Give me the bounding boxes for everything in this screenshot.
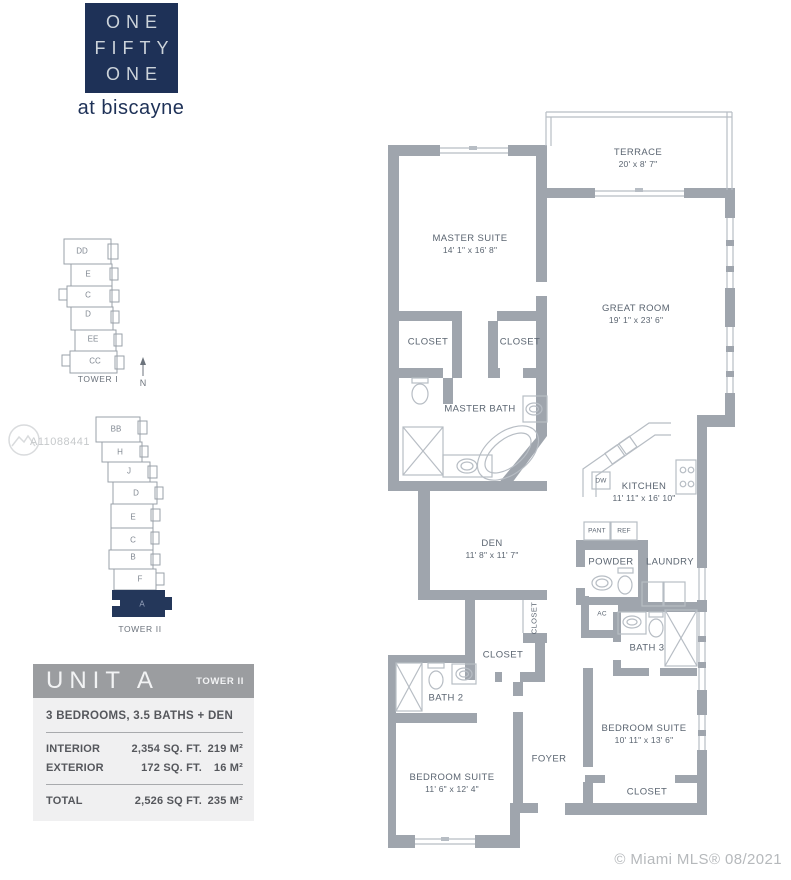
room-label-kitchen: KITCHEN 11' 11" x 16' 10" xyxy=(613,481,676,503)
room-label-closet-hall: CLOSET xyxy=(483,650,523,661)
powder-toilet-icon xyxy=(618,568,633,594)
room-label-closet-vertical: CLOSET xyxy=(530,602,539,634)
tower2-unit-e: E xyxy=(130,513,135,522)
tower2-unit-bb: BB xyxy=(111,425,122,434)
exterior-label: EXTERIOR xyxy=(46,762,124,774)
room-label-bedroom-suite-1: BEDROOM SUITE 11' 6" x 12' 4" xyxy=(410,772,495,794)
tower-1-diagram xyxy=(59,239,124,373)
tower2-unit-h: H xyxy=(117,448,123,457)
card-divider-2 xyxy=(46,784,243,785)
unit-tower-label: TOWER II xyxy=(196,676,244,687)
unit-info-card: UNIT A TOWER II 3 BEDROOMS, 3.5 BATHS + … xyxy=(33,664,254,821)
room-label-master-bath: MASTER BATH xyxy=(444,404,515,415)
interior-row: INTERIOR 2,354 SQ. FT. 219 M² xyxy=(46,743,243,755)
tower2-unit-f: F xyxy=(138,575,143,584)
room-label-foyer: FOYER xyxy=(532,754,567,765)
room-label-laundry: LAUNDRY xyxy=(646,557,694,568)
master-bath-toilet-icon xyxy=(412,378,428,404)
exterior-row: EXTERIOR 172 SQ. FT. 16 M² xyxy=(46,762,243,774)
pantry-label: PANT xyxy=(588,528,606,535)
bath2-toilet-icon xyxy=(428,663,444,689)
ac-label: AC xyxy=(597,611,606,618)
tower1-unit-e: E xyxy=(85,270,90,279)
tower-2-diagram xyxy=(96,417,164,590)
tower2-unit-j: J xyxy=(127,467,131,476)
tower1-unit-dd: DD xyxy=(76,247,88,256)
tower2-unit-c: C xyxy=(130,536,136,545)
tower2-unit-a-highlighted: A xyxy=(139,600,144,609)
room-label-bedroom-suite-2: BEDROOM SUITE 10' 11" x 13' 6" xyxy=(602,723,687,745)
exterior-sqft: 172 SQ. FT. xyxy=(124,762,202,774)
fridge-label: REF xyxy=(617,528,631,535)
room-label-closet-4: CLOSET xyxy=(627,787,667,798)
room-label-den: DEN 11' 8" x 11' 7" xyxy=(465,538,518,560)
card-divider-1 xyxy=(46,732,243,733)
tower2-unit-b: B xyxy=(130,553,135,562)
total-section: TOTAL 2,526 SQ FT. 235 M² xyxy=(46,795,243,807)
tower1-unit-cc: CC xyxy=(89,357,101,366)
tower2-unit-d: D xyxy=(133,489,139,498)
tower1-unit-ee: EE xyxy=(88,335,99,344)
north-label: N xyxy=(140,378,147,388)
bath3-shower-icon xyxy=(665,610,697,666)
tower1-unit-d: D xyxy=(85,310,91,319)
bath2-shower-icon xyxy=(396,663,422,711)
north-arrow-icon xyxy=(140,357,146,376)
room-label-great-room: GREAT ROOM 19' 1" x 23' 6" xyxy=(602,303,670,325)
mls-watermark: A11088441 xyxy=(30,436,90,448)
room-label-closet-1: CLOSET xyxy=(408,337,448,348)
room-label-bath-3: BATH 3 xyxy=(630,643,665,654)
total-m2: 235 M² xyxy=(202,795,243,807)
room-label-master-suite: MASTER SUITE 14' 1" x 16' 8" xyxy=(432,233,507,255)
cooktop-icon xyxy=(676,460,696,494)
exterior-m2: 16 M² xyxy=(202,762,243,774)
powder-sink-icon xyxy=(592,576,612,590)
total-sqft: 2,526 SQ FT. xyxy=(124,795,202,807)
total-label: TOTAL xyxy=(46,795,124,807)
interior-m2: 219 M² xyxy=(202,743,243,755)
master-bath-shower-icon xyxy=(403,427,443,475)
unit-card-body: 3 BEDROOMS, 3.5 BATHS + DEN INTERIOR 2,3… xyxy=(33,698,254,821)
bath3-toilet-icon xyxy=(649,612,663,637)
room-label-bath-2: BATH 2 xyxy=(429,693,464,704)
unit-card-header: UNIT A TOWER II xyxy=(33,664,254,698)
dishwasher-label: DW xyxy=(595,478,606,485)
room-label-closet-2: CLOSET xyxy=(500,337,540,348)
tower1-unit-c: C xyxy=(85,291,91,300)
interior-sqft: 2,354 SQ. FT. xyxy=(124,743,202,755)
room-label-terrace: TERRACE 20' x 8' 7" xyxy=(614,147,662,169)
unit-title: UNIT A xyxy=(46,667,159,695)
page: ONE FIFTY ONE at biscayne xyxy=(0,0,791,880)
total-row: TOTAL 2,526 SQ FT. 235 M² xyxy=(46,795,243,807)
kitchen-sink-icon xyxy=(605,436,637,464)
interior-label: INTERIOR xyxy=(46,743,124,755)
room-label-powder: POWDER xyxy=(588,557,633,568)
tower1-caption: TOWER I xyxy=(78,374,118,384)
tower2-caption: TOWER II xyxy=(118,624,161,634)
unit-summary: 3 BEDROOMS, 3.5 BATHS + DEN xyxy=(46,710,243,722)
mls-copyright: © Miami MLS® 08/2021 xyxy=(614,851,782,868)
bath3-sink-icon xyxy=(618,612,646,634)
